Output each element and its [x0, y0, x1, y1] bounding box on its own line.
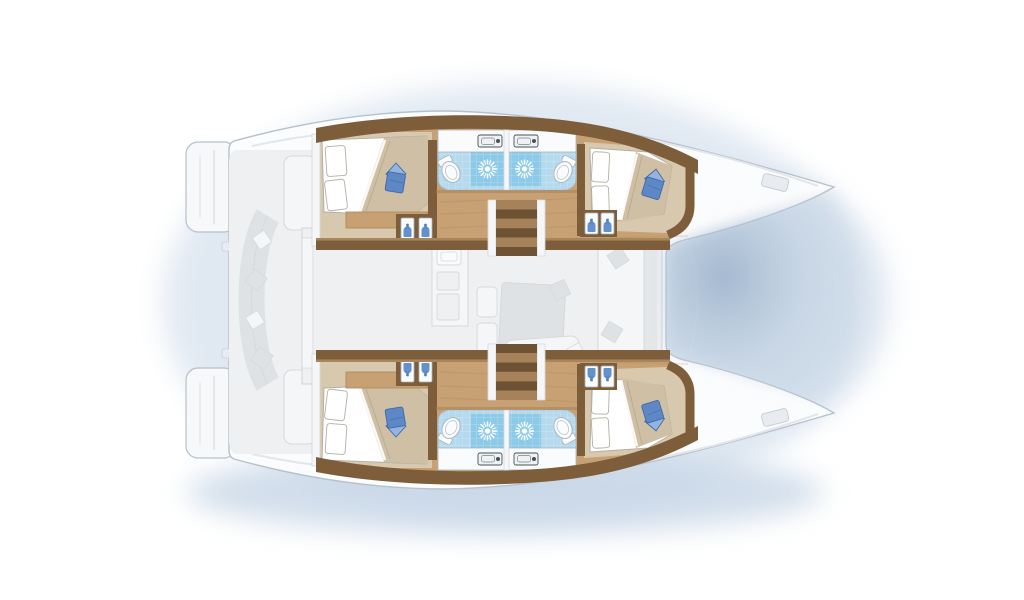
starboard-hull-interior	[312, 344, 698, 485]
dining-seat	[477, 287, 497, 317]
galley-appliance	[437, 272, 459, 290]
floor-plan-page	[0, 0, 1024, 600]
salon-aft-door	[302, 238, 313, 368]
salon-forward-sofa-back	[644, 246, 657, 358]
port-hull-interior	[312, 115, 698, 256]
cockpit-seat	[284, 156, 316, 230]
catamaran-floor-plan	[0, 0, 1024, 600]
galley-appliance	[437, 294, 459, 320]
